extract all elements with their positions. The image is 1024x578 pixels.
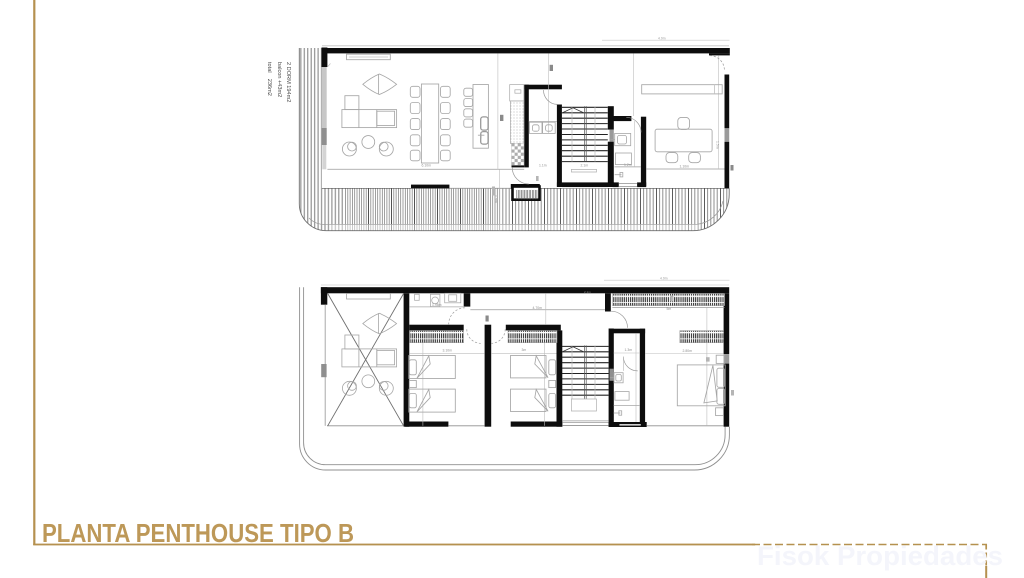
svg-text:PLANTA PENTHOUSE TIPO B: PLANTA PENTHOUSE TIPO B: [42, 520, 354, 548]
svg-text:2 DORM 194m2: 2 DORM 194m2: [285, 62, 291, 102]
svg-text:4.9m: 4.9m: [660, 276, 668, 280]
svg-text:1.3m: 1.3m: [625, 348, 633, 352]
svg-text:4.70m: 4.70m: [533, 306, 543, 310]
svg-text:total 236m2: total 236m2: [266, 62, 272, 96]
svg-text:1.1m: 1.1m: [539, 164, 547, 168]
svg-text:0.9m: 0.9m: [494, 195, 498, 203]
svg-text:1.2m: 1.2m: [624, 163, 632, 167]
svg-text:3m: 3m: [522, 348, 527, 352]
svg-text:2.80m: 2.80m: [683, 349, 693, 353]
svg-text:3.10m: 3.10m: [443, 349, 453, 353]
svg-text:2.1m: 2.1m: [584, 290, 591, 294]
svg-text:1.98m: 1.98m: [432, 303, 442, 307]
svg-text:1.10m: 1.10m: [680, 165, 690, 169]
svg-text:1.5m: 1.5m: [716, 141, 720, 149]
svg-text:Fisok Propiedades: Fisok Propiedades: [757, 541, 1003, 571]
svg-text:4.9m: 4.9m: [658, 36, 666, 40]
svg-text:5m: 5m: [667, 307, 672, 311]
svg-text:balcon +43m2: balcon +43m2: [276, 62, 282, 97]
svg-text:2.1m: 2.1m: [581, 164, 589, 168]
svg-text:6.10m: 6.10m: [422, 164, 432, 168]
